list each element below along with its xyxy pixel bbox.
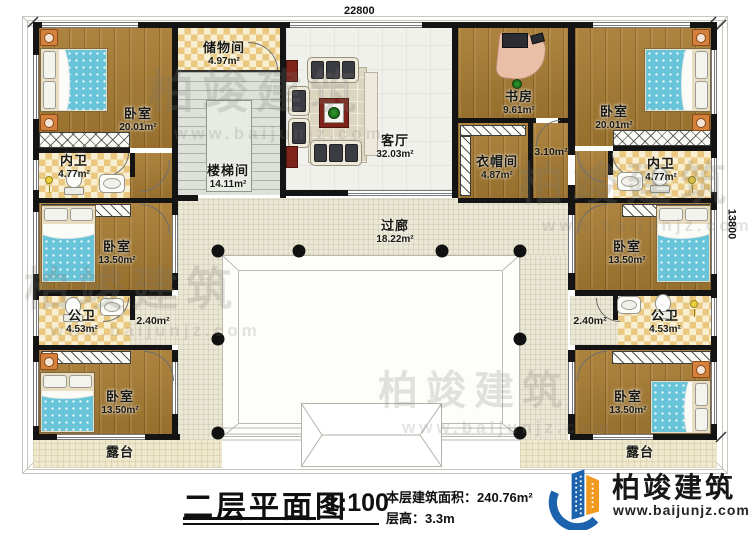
logo-building-blue — [572, 469, 585, 519]
room-label-bedroom-br: 卧室 13.50m² — [609, 390, 646, 416]
floor-height-value: 3.3m — [425, 511, 455, 526]
room-label-bedroom-ml: 卧室 13.50m² — [98, 240, 135, 266]
room-name: 露台 — [106, 446, 134, 461]
window — [172, 215, 178, 273]
room-area: 4.77m² — [645, 172, 677, 183]
lamp-icon — [688, 176, 696, 184]
room-area: 20.01m² — [595, 120, 632, 131]
wall-int — [568, 22, 575, 155]
room-area: 20.01m² — [119, 122, 156, 133]
pillows — [693, 49, 710, 111]
room-name: 露台 — [626, 446, 654, 461]
logo-building-orange — [586, 475, 599, 515]
room-name: 公卫 — [649, 309, 681, 324]
company-url: www.baijunjz.com — [613, 502, 750, 518]
pillows — [41, 49, 58, 111]
window — [711, 298, 717, 336]
floor-plan-sheet: 柏竣建筑 www.baijunjz.com 柏竣建筑 www.baijunjz.… — [0, 0, 750, 535]
tv-cabinet — [286, 146, 298, 168]
window — [57, 434, 145, 440]
room-name: 衣帽间 — [476, 155, 518, 170]
mattress — [42, 391, 93, 431]
room-area: 14.11m² — [207, 179, 249, 190]
company-name: 柏竣建筑 — [612, 466, 736, 506]
sink-icon — [99, 174, 125, 193]
wall-int — [280, 22, 286, 198]
wall-int — [39, 290, 172, 296]
bed — [40, 48, 108, 112]
window — [568, 215, 575, 273]
room-name: 过廊 — [376, 219, 413, 234]
dimension-top: 22800 — [344, 5, 375, 17]
wall-int — [286, 190, 348, 196]
window — [42, 22, 138, 28]
mattress — [652, 382, 692, 432]
sink-icon — [100, 298, 124, 316]
room-name: 卧室 — [609, 390, 646, 405]
room-name: 内卫 — [645, 157, 677, 172]
wall-int — [452, 22, 458, 198]
window — [711, 362, 717, 424]
room-area: 13.50m² — [609, 405, 646, 416]
armchair — [288, 86, 310, 116]
computer-icon — [502, 33, 528, 48]
room-name: 卧室 — [101, 390, 138, 405]
porch-roof — [301, 403, 442, 467]
wall-int — [130, 296, 135, 320]
lamp-icon — [45, 176, 53, 184]
room-area: 13.50m² — [98, 255, 135, 266]
room-name: 楼梯间 — [207, 164, 249, 179]
mattress — [43, 224, 94, 281]
window — [711, 158, 717, 192]
window — [348, 190, 452, 196]
mattress — [658, 224, 709, 281]
bed — [41, 205, 96, 283]
wall-int — [575, 198, 717, 203]
room-name: 客厅 — [376, 134, 413, 149]
window — [593, 434, 653, 440]
room-area: 18.22m² — [376, 234, 413, 245]
room-name: 卧室 — [119, 107, 156, 122]
window — [33, 362, 39, 426]
nightstand — [692, 114, 710, 131]
room-label-gongwei-left: 公卫 4.53m² — [66, 309, 98, 335]
wall-int — [39, 198, 178, 203]
bed — [650, 380, 711, 434]
room-label-stairwell: 楼梯间 14.11m² — [207, 164, 249, 190]
room-area: 4.53m² — [66, 324, 98, 335]
room-label-cloakroom: 衣帽间 4.87m² — [476, 155, 518, 181]
floor-height-label: 层高： — [386, 511, 425, 526]
room-area: 32.03m² — [376, 149, 413, 160]
floor-area-line: 本层建筑面积：240.76m² — [386, 487, 533, 506]
room-label-bedroom-bl: 卧室 13.50m² — [101, 390, 138, 416]
window — [593, 22, 690, 28]
room-area: 13.50m² — [101, 405, 138, 416]
window — [33, 212, 39, 274]
room-label-terrace-right: 露台 — [626, 446, 654, 461]
sofa — [307, 57, 359, 83]
room-label-terrace-left: 露台 — [106, 446, 134, 461]
room-name: 内卫 — [58, 154, 90, 169]
sofa — [310, 140, 362, 166]
window — [33, 55, 39, 119]
room-label-bedroom-tr: 卧室 20.01m² — [595, 105, 632, 131]
room-name: 书房 — [503, 90, 535, 105]
window — [568, 362, 575, 414]
area-label-hall-right: 2.40m² — [573, 315, 606, 327]
wall-int — [172, 28, 178, 198]
pillows — [41, 373, 94, 390]
nightstand — [692, 361, 710, 378]
room-name: 卧室 — [595, 105, 632, 120]
area-label-hall-left: 2.40m² — [136, 315, 169, 327]
room-label-storage: 储物间 4.97m² — [203, 41, 245, 67]
title-underline-2 — [183, 523, 379, 525]
tv-cabinet — [286, 60, 298, 82]
stair-storage-line — [178, 70, 280, 72]
room-area: 9.61m² — [503, 105, 535, 116]
armchair — [288, 118, 310, 148]
room-name: 卧室 — [608, 240, 645, 255]
dimension-right: 13800 — [725, 209, 737, 240]
window — [33, 300, 39, 336]
room-area: 4.87m² — [476, 170, 518, 181]
room-name: 卧室 — [98, 240, 135, 255]
pillows — [42, 206, 95, 223]
nightstand — [40, 114, 58, 131]
window — [290, 22, 422, 28]
mattress — [646, 50, 692, 110]
wall-int — [178, 195, 198, 201]
pillows — [693, 381, 710, 433]
lamp-icon — [690, 300, 698, 308]
floor-area-value: 240.76m² — [477, 490, 533, 505]
wall-int — [575, 345, 717, 350]
room-area: 4.53m² — [649, 324, 681, 335]
floor-area-label: 本层建筑面积： — [386, 490, 477, 505]
sink-icon — [617, 296, 641, 314]
room-area: 4.77m² — [58, 169, 90, 180]
room-label-neiwei-left: 内卫 4.77m² — [58, 154, 90, 180]
wall-int — [613, 146, 711, 151]
window — [711, 210, 717, 274]
room-label-gongwei-right: 公卫 4.53m² — [649, 309, 681, 335]
plant-icon — [328, 107, 340, 119]
room-label-neiwei-right: 内卫 4.77m² — [645, 157, 677, 183]
bed — [40, 372, 95, 433]
wall-int — [528, 123, 533, 198]
bed — [656, 205, 711, 283]
wall-int — [458, 198, 575, 203]
window — [33, 160, 39, 190]
nightstand — [40, 29, 58, 46]
title-underline — [183, 517, 316, 520]
nightstand — [40, 353, 58, 370]
room-label-bedroom-mr: 卧室 13.50m² — [608, 240, 645, 266]
wall-int — [130, 153, 135, 177]
company-logo-icon — [546, 460, 610, 530]
room-area: 4.97m² — [203, 56, 245, 67]
area-label-hall-310: 3.10m² — [534, 146, 567, 158]
room-label-living: 客厅 32.03m² — [376, 134, 413, 160]
pillows — [657, 206, 710, 223]
wall-int — [575, 290, 717, 296]
room-area: 13.50m² — [608, 255, 645, 266]
room-label-bedroom-tl: 卧室 20.01m² — [119, 107, 156, 133]
floor-height-line: 层高：3.3m — [386, 508, 455, 527]
room-name: 储物间 — [203, 41, 245, 56]
room-label-corridor: 过廊 18.22m² — [376, 219, 413, 245]
room-name: 公卫 — [66, 309, 98, 324]
sink-icon — [617, 172, 643, 191]
bed — [644, 48, 711, 112]
mattress — [59, 50, 106, 110]
room-label-study: 书房 9.61m² — [503, 90, 535, 116]
drawing-scale: 1:100 — [325, 489, 389, 518]
window — [172, 362, 178, 414]
nightstand — [692, 29, 710, 46]
wall-int — [39, 345, 172, 350]
plant-icon — [512, 79, 522, 89]
window — [711, 50, 717, 114]
